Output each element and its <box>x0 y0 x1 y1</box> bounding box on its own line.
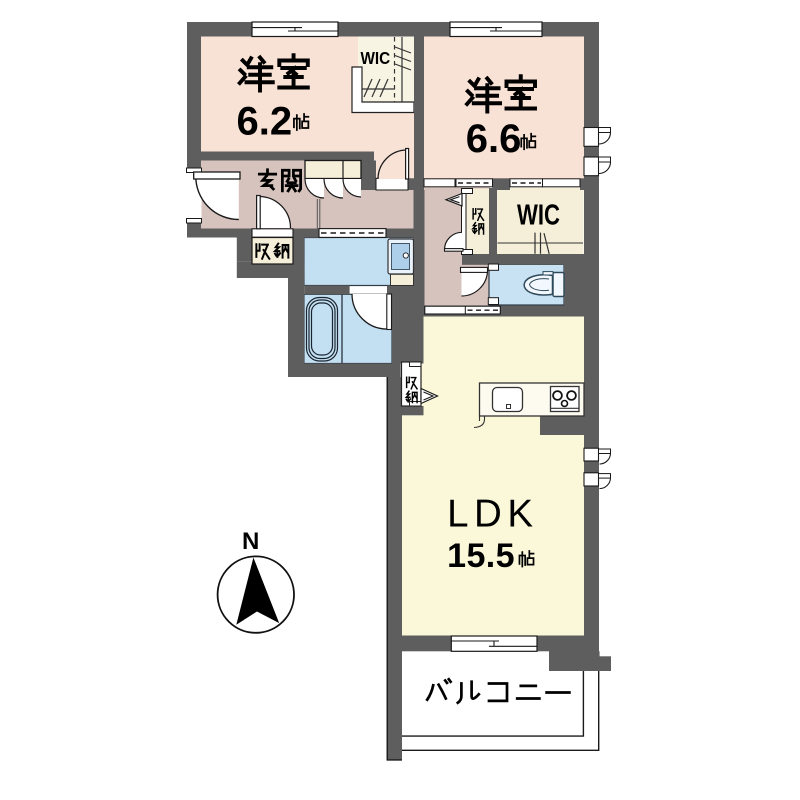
svg-text:LDK: LDK <box>447 493 540 536</box>
svg-text:6.6: 6.6 <box>466 117 522 161</box>
svg-text:N: N <box>242 528 259 555</box>
svg-text:15.5: 15.5 <box>447 537 514 575</box>
svg-text:WIC: WIC <box>361 48 391 68</box>
svg-text:6.2: 6.2 <box>237 99 293 143</box>
svg-text:WIC: WIC <box>517 200 560 232</box>
